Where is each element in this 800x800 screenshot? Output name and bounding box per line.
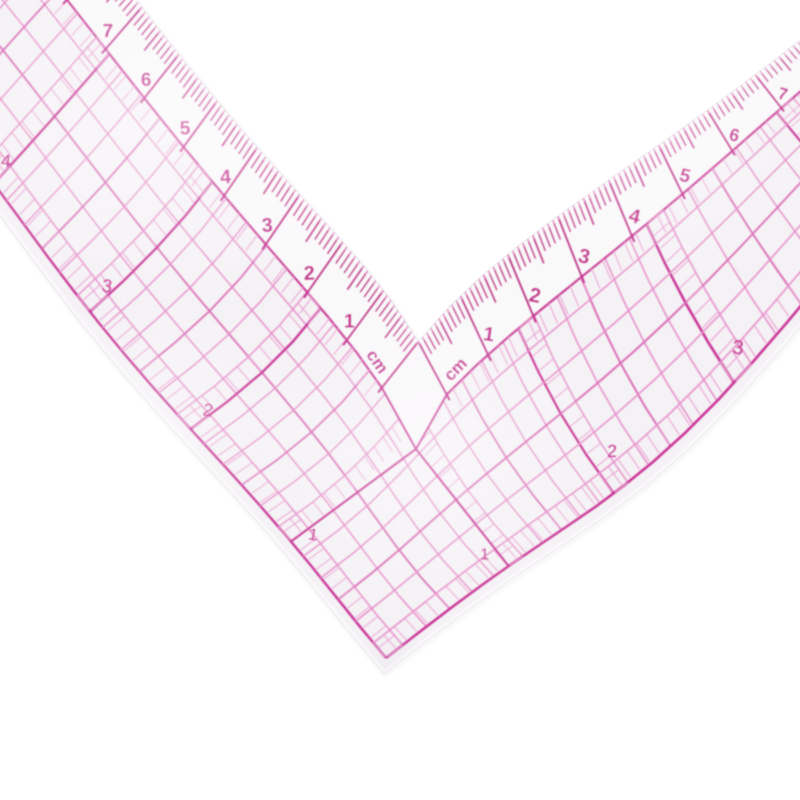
svg-text:3: 3 — [731, 336, 744, 359]
